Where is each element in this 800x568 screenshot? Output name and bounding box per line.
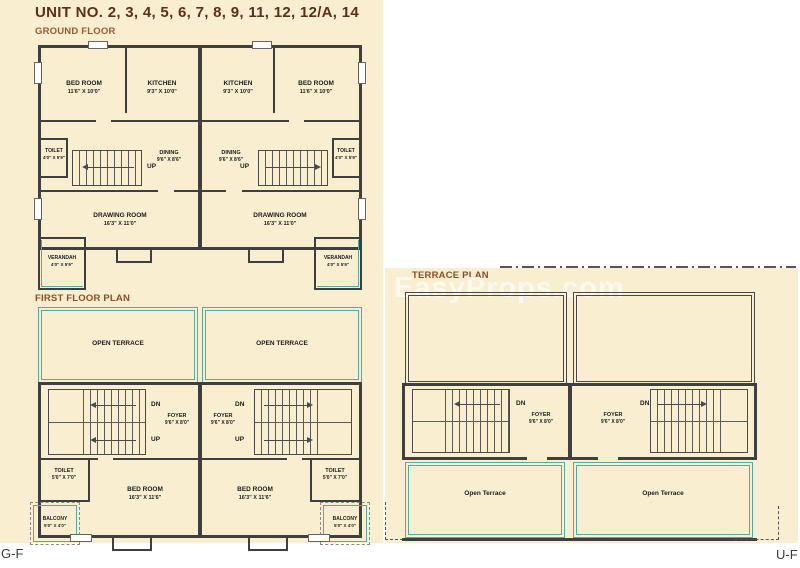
page-title: UNIT NO. 2, 3, 4, 5, 6, 7, 8, 9, 11, 12,… [35,4,359,21]
wall [40,138,68,140]
window-mark [88,41,108,49]
room-dim-text: 9'6" X 8'0" [156,420,198,427]
room-name-text: DRAWING ROOM [220,212,340,221]
wall [402,538,757,541]
corner-label-upper: U-F [776,547,798,562]
room-label-open-terrace: OPEN TERRACE [222,340,342,349]
room-dim-text: 11'6" X 10'0" [44,89,124,96]
room-name-text: FOYER [518,412,564,419]
door-opening [527,457,547,460]
stair-direction-arrow [84,167,134,168]
arrow-right-icon [701,401,710,407]
up-label: UP [151,436,160,443]
window-mark [34,198,42,220]
room-name-text: BED ROOM [205,486,305,495]
room-label-dining: DINING 9'6" X 8'6" [204,150,258,164]
door-opening [226,190,242,192]
room-dim-text: 5'0" X 4'0" [322,523,368,529]
room-label-bedroom: BED ROOM 16'3" X 11'6" [95,486,195,502]
room-label-dining: DINING 9'6" X 8'6" [142,150,196,164]
arrow-left-icon [87,402,96,408]
room-dim-text: 9'6" X 8'0" [590,419,636,426]
wall [40,190,198,192]
door-opening [96,120,111,122]
room-dim-text: 9'6" X 8'6" [142,157,196,164]
wall [40,176,68,178]
wall [198,47,202,248]
dashed-step-line [735,506,779,540]
room-label-toilet: TOILET 4'0" X 5'9" [42,148,66,161]
staircase [412,389,510,453]
wall [66,138,68,178]
stair-landing-line [49,422,145,423]
staircase [48,389,146,455]
floorplan-sheet: UNIT NO. 2, 3, 4, 5, 6, 7, 8, 9, 11, 12,… [0,0,800,568]
room-label-balcony: BALCONY 5'0" X 4'0" [322,516,368,529]
arrow-right-icon [307,402,316,408]
dn-label: DN [151,401,160,408]
staircase [254,389,352,455]
room-name-text: DINING [142,150,196,157]
section-label-ground-floor: GROUND FLOOR [35,26,116,37]
room-dim-text: 9'6" X 8'0" [202,420,244,427]
room-label-foyer: FOYER 9'6" X 8'0" [518,412,564,426]
room-dim-text: 16'3" X 11'0" [220,221,340,228]
room-dim-text: 9'3" X 10'0" [204,89,272,96]
stair-direction-arrow [264,405,308,406]
dn-label: DN [235,401,244,408]
wall [202,120,360,122]
room-name-text: OPEN TERRACE [222,340,342,349]
room-label-foyer: FOYER 9'6" X 8'0" [156,413,198,427]
room-name-text: Open Terrace [623,490,703,499]
roof-slab-outline [405,292,567,385]
door-opening [158,190,174,192]
staircase [650,389,748,453]
room-name-text: DINING [204,150,258,157]
wall [273,47,275,113]
up-label: UP [240,163,249,170]
room-dim-text: 4'0" X 5'9" [334,155,358,161]
room-label-verandah: VERANDAH 4'0" X 5'9" [316,255,360,268]
door-opening [287,458,302,460]
section-label-first-floor: FIRST FLOOR PLAN [35,293,130,304]
open-terrace-outline [573,462,753,538]
room-label-open-terrace: OPEN TERRACE [58,340,178,349]
room-name-text: KITCHEN [204,80,272,89]
room-name-text: BED ROOM [276,80,356,89]
room-name-text: OPEN TERRACE [58,340,178,349]
room-name-text: TOILET [43,468,85,475]
room-dim-text: 4'0" X 5'9" [42,155,66,161]
arrow-right-icon [307,437,316,443]
room-name-text: VERANDAH [316,255,360,262]
room-dim-text: 16'3" X 11'6" [95,495,195,502]
room-name-text: VERANDAH [40,255,84,262]
grid-dash-line [500,266,796,268]
up-label: UP [235,436,244,443]
entry-step [248,538,288,551]
room-dim-text: 5'0" X 4'0" [32,523,78,529]
stair-landing-line [651,421,747,422]
wall [198,385,202,535]
room-label-kitchen: KITCHEN 9'3" X 10'0" [128,80,196,96]
wall [568,386,572,457]
room-label-drawing-room: DRAWING ROOM 16'3" X 11'0" [60,212,180,228]
window-mark [358,62,366,84]
room-label-bedroom: BED ROOM 11'6" X 10'0" [276,80,356,96]
room-label-toilet: TOILET 4'0" X 5'9" [334,148,358,161]
entry-step [248,250,284,263]
room-name-text: TOILET [42,148,66,155]
room-dim-text: 16'3" X 11'0" [60,221,180,228]
stair-direction-arrow [266,167,316,168]
door-opening [98,458,113,460]
wall [332,176,360,178]
room-label-bedroom: BED ROOM 11'6" X 10'0" [44,80,124,96]
arrow-left-icon [79,164,88,170]
open-terrace-outline [405,462,565,538]
room-label-toilet: TOILET 5'0" X 7'0" [43,468,85,482]
wall [40,458,198,460]
room-name-text: FOYER [156,413,198,420]
room-label-verandah: VERANDAH 4'0" X 5'9" [40,255,84,268]
window-mark [308,534,330,542]
room-dim-text: 11'6" X 10'0" [276,89,356,96]
room-label-foyer: FOYER 9'6" X 8'0" [590,412,636,426]
door-opening [598,457,618,460]
room-name-text: KITCHEN [128,80,196,89]
window-mark [70,534,92,542]
stair-direction-arrow [92,440,136,441]
stair-landing-line [255,422,351,423]
room-label-open-terrace: Open Terrace [623,490,703,499]
corner-label-ground: G-F [1,546,23,561]
room-dim-text: 4'0" X 5'9" [316,262,360,268]
arrow-right-icon [315,164,324,170]
stair-landing-line [413,421,509,422]
room-name-text: TOILET [334,148,358,155]
room-name-text: BED ROOM [95,486,195,495]
wall [332,138,360,140]
entry-step [116,250,152,263]
wall [40,120,198,122]
window-mark [252,41,272,49]
stair-direction-arrow [456,404,500,405]
arrow-left-icon [87,437,96,443]
room-dim-text: 9'3" X 10'0" [128,89,196,96]
room-name-text: Open Terrace [445,490,525,499]
room-name-text: DRAWING ROOM [60,212,180,221]
arrow-left-icon [451,401,460,407]
room-dim-text: 16'3" X 11'6" [205,495,305,502]
room-dim-text: 5'0" X 7'0" [314,475,356,482]
dashed-step-line [385,502,403,540]
room-label-bedroom: BED ROOM 16'3" X 11'6" [205,486,305,502]
room-label-open-terrace: Open Terrace [445,490,525,499]
room-dim-text: 5'0" X 7'0" [43,475,85,482]
stair-direction-arrow [264,440,308,441]
wall [125,47,127,113]
window-mark [358,198,366,220]
dn-label: DN [516,400,525,407]
room-label-foyer: FOYER 9'6" X 8'0" [202,413,244,427]
room-name-text: BALCONY [322,516,368,523]
room-label-drawing-room: DRAWING ROOM 16'3" X 11'0" [220,212,340,228]
stair-direction-arrow [658,404,702,405]
dn-label: DN [640,400,649,407]
room-dim-text: 9'6" X 8'0" [518,419,564,426]
wall [310,460,312,502]
room-name-text: FOYER [590,412,636,419]
room-name-text: TOILET [314,468,356,475]
wall [88,460,90,502]
up-label: UP [147,163,156,170]
room-name-text: FOYER [202,413,244,420]
room-label-kitchen: KITCHEN 9'3" X 10'0" [204,80,272,96]
room-label-toilet: TOILET 5'0" X 7'0" [314,468,356,482]
room-name-text: BALCONY [32,516,78,523]
door-opening [289,120,304,122]
room-dim-text: 4'0" X 5'9" [40,262,84,268]
roof-slab-outline [573,292,755,385]
stair-direction-arrow [92,405,136,406]
room-dim-text: 9'6" X 8'6" [204,157,258,164]
room-name-text: BED ROOM [44,80,124,89]
room-label-balcony: BALCONY 5'0" X 4'0" [32,516,78,529]
window-mark [34,62,42,84]
entry-step [112,538,152,551]
wall [202,458,360,460]
